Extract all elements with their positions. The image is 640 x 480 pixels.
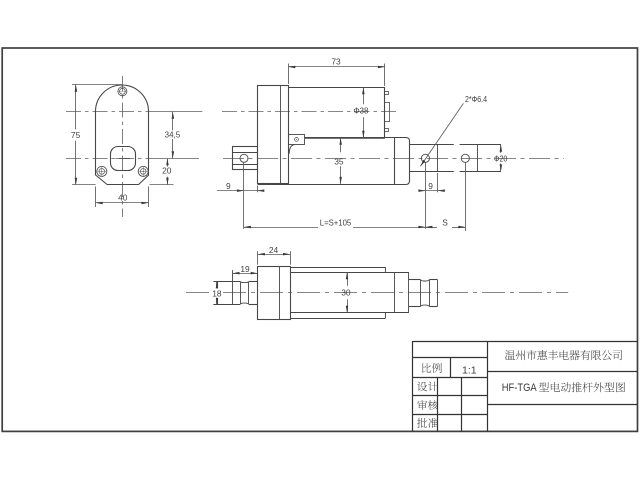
svg-text:S: S <box>442 218 448 228</box>
svg-text:20: 20 <box>162 166 172 176</box>
svg-text:73: 73 <box>331 56 341 66</box>
svg-text:30: 30 <box>341 288 351 298</box>
svg-text:18: 18 <box>212 288 222 298</box>
svg-text:9: 9 <box>428 181 433 191</box>
svg-text:Φ20: Φ20 <box>494 153 508 163</box>
svg-text:9: 9 <box>226 181 231 191</box>
svg-text:1:1: 1:1 <box>462 365 477 377</box>
svg-text:75: 75 <box>71 130 81 140</box>
svg-text:2*Φ6.4: 2*Φ6.4 <box>465 94 487 104</box>
svg-text:L=S+105: L=S+105 <box>320 218 352 228</box>
svg-text:Φ38: Φ38 <box>353 106 368 116</box>
svg-text:40: 40 <box>118 193 128 203</box>
svg-text:19: 19 <box>240 264 250 274</box>
svg-text:35: 35 <box>334 156 344 166</box>
svg-text:HF-TGA: HF-TGA <box>502 382 537 394</box>
svg-text:24: 24 <box>269 245 279 255</box>
svg-text:34,5: 34,5 <box>165 130 181 140</box>
